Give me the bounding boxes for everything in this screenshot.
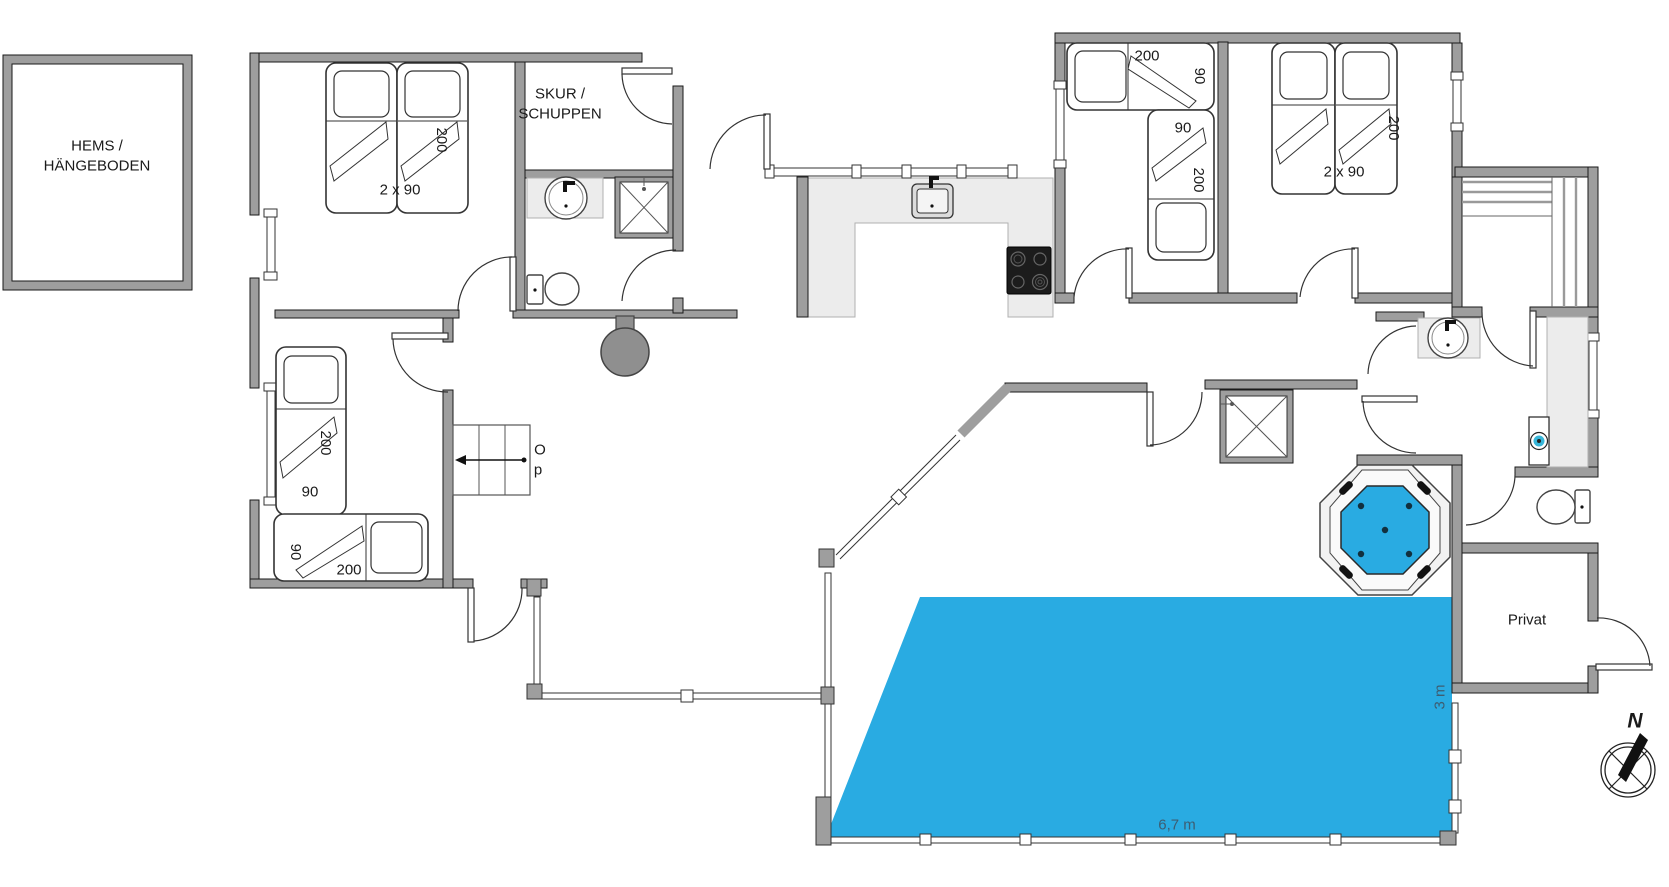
bed-dim: 90 [1175, 118, 1192, 138]
sauna-benches [1462, 177, 1576, 307]
stairs [453, 425, 530, 495]
bathroom1-toilet [527, 273, 579, 305]
bathroom1-shower [615, 177, 673, 238]
bed-dim: 200 [431, 127, 451, 152]
washing-machine [1529, 417, 1549, 465]
hot-tub [1320, 465, 1450, 595]
bed-dim: 90 [285, 544, 305, 561]
stovetop [1007, 247, 1051, 294]
bed-dim: 2 x 90 [1324, 162, 1365, 182]
bed-dim: 200 [1134, 46, 1159, 66]
washroom-cabinet [1547, 317, 1588, 467]
bed-dim: 200 [336, 560, 361, 580]
pool-length-label: 6,7 m [1158, 815, 1196, 835]
bed-dim: 200 [1383, 115, 1403, 140]
private-room-label: Privat [1508, 610, 1546, 630]
shed-label: SKUR / SCHUPPEN [518, 85, 601, 124]
annex-label: HEMS / HÄNGEBODEN [44, 137, 151, 176]
bed-dim: 200 [315, 430, 335, 455]
stairs-up-label-1: O [534, 440, 546, 460]
poolside-shower [1220, 390, 1293, 463]
bed-dim: 90 [1189, 68, 1209, 85]
swimming-pool [826, 597, 1452, 837]
doors [392, 68, 1652, 670]
pool-width-label: 3 m [1430, 684, 1450, 709]
floor-plan: HEMS / HÄNGEBODEN SKUR / SCHUPPEN Privat… [0, 0, 1669, 887]
bed-dim: 90 [302, 482, 319, 502]
bathroom1-sink [527, 177, 603, 219]
stairs-up-label-2: p [534, 460, 542, 480]
wood-stove [601, 316, 649, 376]
bed-dim: 2 x 90 [380, 180, 421, 200]
washroom-toilet [1537, 490, 1590, 524]
compass-rose [1601, 733, 1655, 797]
washroom-sink [1418, 318, 1480, 358]
floorplan-canvas [0, 0, 1669, 887]
bed-dim: 200 [1188, 167, 1208, 192]
compass-north-label: N [1627, 707, 1642, 734]
